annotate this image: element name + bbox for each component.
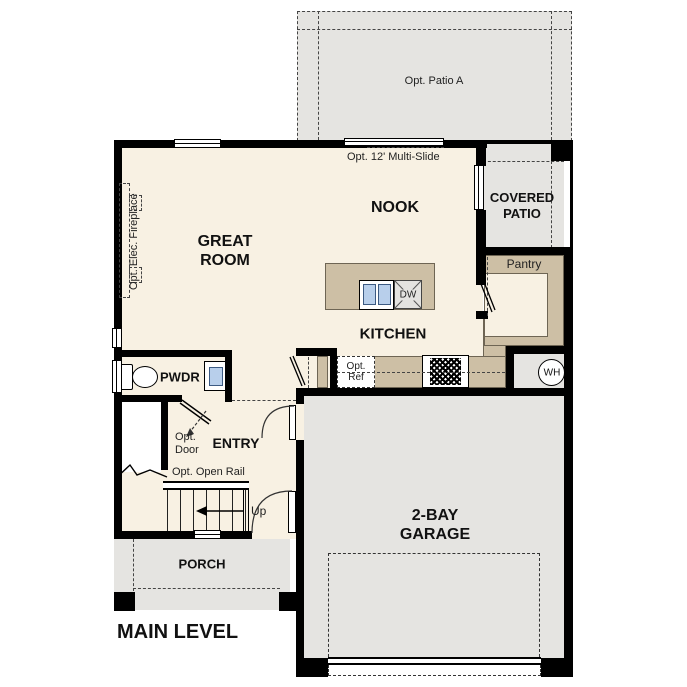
garage-interior-dash (328, 553, 540, 657)
wall-right-thin (570, 161, 573, 250)
wall-coat-closet-right (330, 348, 337, 395)
wall-pwdr-bottom (114, 395, 182, 402)
multi-slide-label: Opt. 12' Multi-Slide (347, 151, 440, 163)
pwdr-sink-basin (209, 367, 223, 386)
stair-window (194, 530, 221, 539)
wall-pantry-bottom (506, 346, 572, 354)
wall-understair-right (161, 402, 168, 470)
opt-open-rail-label: Opt. Open Rail (172, 466, 245, 478)
understair-void (122, 402, 161, 472)
main-level-title: MAIN LEVEL (117, 621, 238, 644)
opt-ref-line2: Ref (347, 372, 366, 383)
stair-tread-edge (243, 490, 249, 531)
opt-door-line2: Door (175, 444, 199, 457)
entry-dash (232, 400, 296, 401)
wall-pwdr-top (114, 350, 232, 357)
opt-door-label: Opt. Door (175, 431, 199, 457)
wall-patio-post (551, 140, 573, 161)
kitchen-label: KITCHEN (360, 326, 427, 343)
front-door-leaf (288, 491, 296, 533)
wall-right-main (564, 250, 573, 677)
wall-garage-left-a (296, 388, 304, 404)
porch-dash-bottom (133, 588, 280, 589)
multi-slide-dash (367, 147, 444, 148)
opt-patio-inner-line-left (318, 11, 319, 140)
opt-patio-inner-line-right (551, 11, 552, 140)
coat-closet-shelf (317, 356, 328, 388)
multi-slide-door (344, 138, 444, 146)
wall-patio-topline (487, 140, 551, 144)
great-room-line2: ROOM (198, 251, 253, 270)
wall-pantry-top (476, 247, 572, 255)
great-room-window (174, 139, 221, 148)
left-window-2 (112, 360, 122, 393)
toilet-bowl (132, 366, 158, 388)
floor-plan-canvas: GREAT ROOM NOOK KITCHEN COVERED PATIO Pa… (0, 0, 687, 687)
porch-post-left (114, 592, 135, 611)
porch-dash-left (133, 539, 134, 591)
covered-patio-line2: PATIO (490, 206, 554, 222)
opt-patio-label: Opt. Patio A (405, 75, 464, 87)
pantry-door-floor (476, 285, 483, 356)
opt-door-line1: Opt. (175, 431, 199, 444)
wall-garage-left-b (296, 440, 304, 658)
pantry-floor (484, 273, 548, 337)
opt-patio-inner-line-top (297, 29, 572, 30)
fireplace-label: Opt. Elec. Fireplace (128, 186, 140, 298)
garage-label: 2-BAY GARAGE (400, 506, 470, 544)
garage-line1: 2-BAY (400, 506, 470, 525)
nook-window (474, 165, 484, 210)
coat-closet-dash (308, 357, 309, 388)
covered-patio-line1: COVERED (490, 190, 554, 206)
dishwasher-label: DW (399, 290, 418, 301)
left-window-1 (112, 328, 122, 348)
great-room-line1: GREAT (198, 232, 253, 251)
great-room-label: GREAT ROOM (198, 232, 253, 270)
pwdr-label: PWDR (160, 370, 200, 385)
stair-rail (163, 481, 249, 490)
water-heater-label: WH (544, 368, 561, 379)
covered-patio-label: COVERED PATIO (490, 190, 554, 222)
island-sink-basin-right (378, 284, 391, 305)
up-label: Up (251, 504, 266, 518)
wall-bottom-b (221, 531, 252, 539)
island-sink-basin-left (363, 284, 376, 305)
opt-ref-label: Opt. Ref (347, 361, 366, 383)
wall-garage-bottom-right (541, 658, 573, 677)
nook-label: NOOK (371, 199, 419, 217)
garage-line2: GARAGE (400, 525, 470, 544)
pantry-label: Pantry (507, 257, 542, 271)
pantry-side-dash (487, 257, 488, 316)
wall-pwdr-right (225, 350, 232, 402)
entry-label: ENTRY (213, 435, 260, 451)
garage-door-gap (296, 404, 304, 440)
wall-bottom-a (114, 531, 194, 539)
wall-garage-bottom-left (296, 658, 328, 677)
garage-apron-dash (328, 665, 541, 676)
porch-label: PORCH (179, 557, 226, 572)
garage-man-door-leaf (289, 405, 296, 440)
opt-ref-line1: Opt. (347, 361, 366, 372)
wall-garage-top (296, 388, 572, 396)
wall-nook-right-a (476, 140, 486, 166)
garage-door (328, 657, 541, 665)
porch-step (135, 592, 279, 610)
stair-treads (167, 490, 247, 531)
